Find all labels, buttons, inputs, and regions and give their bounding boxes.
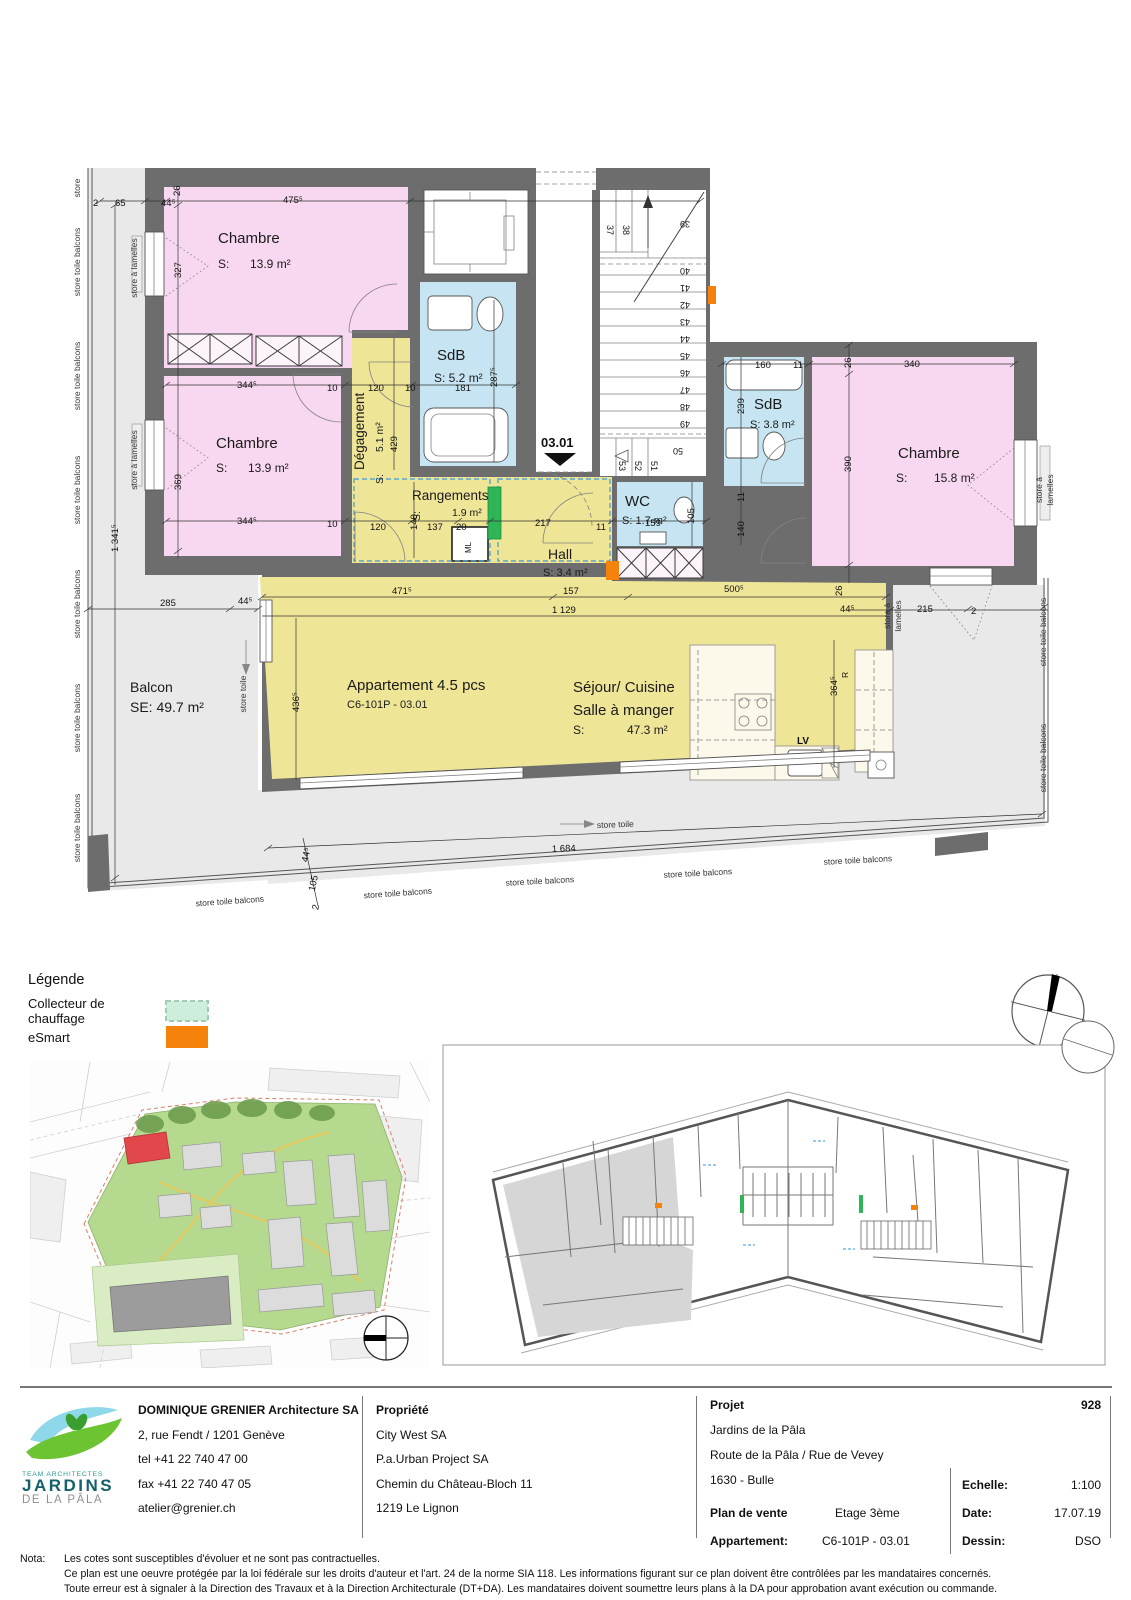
site-plan	[30, 1062, 430, 1368]
svg-text:39: 39	[680, 219, 690, 229]
legend-swatch-esmart	[164, 1025, 210, 1049]
svg-text:store toile balcons: store toile balcons	[72, 342, 82, 411]
svg-text:1 684: 1 684	[552, 843, 576, 855]
svg-text:50: 50	[673, 446, 683, 456]
esmart-box-2	[708, 286, 716, 304]
svg-text:2: 2	[93, 198, 98, 209]
svg-text:52: 52	[633, 461, 643, 471]
title-block: TEAM ARCHITECTES JARDINS DE LA PÂLA DOMI…	[20, 1386, 1112, 1548]
svg-text:53: 53	[617, 461, 627, 471]
svg-text:500⁵: 500⁵	[724, 584, 744, 595]
date-value: 17.07.19	[1054, 1506, 1101, 1520]
svg-text:S:: S:	[374, 474, 386, 484]
svg-text:store toile balcons: store toile balcons	[663, 866, 732, 880]
svg-text:S:: S:	[216, 461, 227, 475]
svg-text:10: 10	[405, 383, 416, 394]
svg-text:65: 65	[115, 198, 126, 209]
svg-text:46: 46	[680, 368, 690, 378]
svg-text:store à: store à	[1034, 477, 1044, 503]
svg-text:344⁵: 344⁵	[237, 516, 257, 527]
svg-text:390: 390	[843, 456, 854, 472]
room-balcon-name: Balcon	[130, 679, 173, 695]
svg-text:137: 137	[427, 522, 443, 533]
svg-text:S:: S:	[896, 471, 907, 485]
svg-text:436⁵: 436⁵	[291, 692, 302, 712]
svg-text:364⁵: 364⁵	[829, 676, 840, 696]
titleblock-separator-2	[696, 1396, 697, 1538]
floor-value: Etage 3ème	[835, 1506, 900, 1520]
elevator	[424, 190, 528, 274]
svg-text:44: 44	[680, 334, 690, 344]
svg-text:41: 41	[680, 283, 690, 293]
svg-text:181: 181	[455, 383, 471, 394]
svg-text:48: 48	[680, 402, 690, 412]
titleblock-separator-3	[950, 1468, 951, 1554]
room-sejour-name: Séjour/ Cuisine	[573, 679, 675, 696]
notes: Nota: Les cotes sont susceptibles d'évol…	[20, 1552, 1120, 1597]
svg-text:105: 105	[686, 508, 697, 524]
svg-text:120: 120	[368, 383, 384, 394]
svg-text:215: 215	[917, 604, 933, 615]
svg-text:10: 10	[327, 383, 338, 394]
site-building-highlight	[124, 1132, 170, 1164]
svg-text:store toile balcons: store toile balcons	[72, 684, 82, 753]
svg-text:S: 3.8 m²: S: 3.8 m²	[750, 419, 795, 431]
apartment-code: C6-101P - 03.01	[347, 699, 428, 711]
svg-text:store: store	[72, 178, 82, 197]
svg-text:344⁵: 344⁵	[237, 380, 257, 391]
room-degagement-name: Dégagement	[352, 392, 367, 470]
legend-title: Légende	[28, 972, 210, 988]
svg-text:1 129: 1 129	[552, 605, 576, 616]
scale-value: 1:100	[1071, 1478, 1101, 1492]
room-wc-name: WC	[625, 493, 650, 510]
collecteur-strip	[488, 487, 501, 539]
svg-text:43: 43	[680, 317, 690, 327]
svg-text:store toile balcons: store toile balcons	[72, 456, 82, 525]
room-sdb2-name: SdB	[754, 396, 782, 413]
apartment-title: Appartement 4.5 pcs	[347, 677, 485, 694]
svg-text:2: 2	[971, 606, 976, 617]
svg-text:13.9 m²: 13.9 m²	[248, 461, 289, 475]
svg-text:327: 327	[173, 262, 184, 278]
svg-text:S:: S:	[218, 257, 229, 271]
svg-text:store toile balcons: store toile balcons	[505, 874, 574, 888]
architect-name: DOMINIQUE GRENIER Architecture SA	[138, 1398, 358, 1423]
svg-text:S: 3.4 m²: S: 3.4 m²	[543, 567, 588, 579]
owner-info: Propriété City West SA P.a.Urban Project…	[376, 1398, 676, 1521]
svg-text:26: 26	[172, 185, 183, 196]
svg-text:369: 369	[173, 474, 184, 490]
svg-text:47.3 m²: 47.3 m²	[627, 723, 668, 737]
svg-text:51: 51	[649, 461, 659, 471]
svg-text:store à lamelles: store à lamelles	[129, 238, 139, 298]
legend-swatch-collecteur	[164, 999, 210, 1023]
svg-text:239: 239	[736, 398, 747, 414]
svg-text:Salle à manger: Salle à manger	[573, 702, 674, 719]
svg-text:45: 45	[680, 351, 690, 361]
fridge-label: R	[840, 672, 850, 678]
svg-text:44⁵: 44⁵	[840, 604, 855, 615]
svg-text:429: 429	[389, 436, 400, 452]
logo-graphic	[22, 1400, 126, 1466]
svg-text:11: 11	[793, 360, 803, 371]
svg-text:store à: store à	[882, 603, 892, 629]
svg-text:157: 157	[563, 586, 579, 597]
svg-text:store toile balcons: store toile balcons	[1038, 724, 1048, 793]
svg-text:1.9 m²: 1.9 m²	[452, 507, 482, 519]
svg-text:140: 140	[409, 514, 420, 530]
svg-text:lamelles: lamelles	[893, 600, 903, 631]
svg-text:26: 26	[834, 585, 845, 596]
room-chambre2-name: Chambre	[216, 435, 278, 452]
legend-item-collecteur: Collecteur de chauffage	[28, 998, 210, 1024]
svg-text:26: 26	[843, 357, 854, 368]
svg-text:38: 38	[621, 225, 631, 235]
svg-text:120: 120	[370, 522, 386, 533]
project-number: 928	[1081, 1398, 1101, 1412]
svg-text:44⁵: 44⁵	[161, 198, 176, 209]
svg-text:store toile balcons: store toile balcons	[72, 570, 82, 639]
svg-text:20: 20	[456, 522, 467, 533]
room-chambre3-name: Chambre	[898, 445, 960, 462]
svg-text:47: 47	[680, 385, 690, 395]
room-rangements-name: Rangements	[412, 488, 489, 503]
dishwasher-label: LV	[797, 736, 809, 747]
svg-text:340: 340	[904, 359, 920, 370]
svg-text:11: 11	[596, 522, 606, 533]
svg-text:140: 140	[736, 521, 747, 537]
svg-text:160: 160	[755, 360, 771, 371]
washer-label: ML	[464, 541, 473, 553]
svg-text:471⁵: 471⁵	[392, 586, 412, 597]
plan-de-vente-sheet: Chambre S: 13.9 m² Chambre S: 13.9 m² Sd…	[0, 0, 1131, 1600]
svg-text:SE: 49.7 m²: SE: 49.7 m²	[130, 699, 204, 715]
nota-label: Nota:	[20, 1552, 64, 1567]
svg-text:285: 285	[160, 598, 176, 609]
esmart-box	[606, 561, 619, 580]
svg-text:1 341⁵: 1 341⁵	[110, 524, 121, 552]
svg-text:40: 40	[680, 266, 690, 276]
svg-text:42: 42	[680, 300, 690, 310]
svg-text:15.8 m²: 15.8 m²	[934, 471, 975, 485]
titleblock-separator-1	[362, 1396, 363, 1538]
room-hall-name: Hall	[548, 546, 572, 562]
svg-text:105: 105	[307, 874, 321, 892]
project-info: Projet 928 Jardins de la Pâla Route de l…	[710, 1398, 1115, 1540]
svg-text:store toile balcons: store toile balcons	[195, 894, 264, 909]
svg-text:475⁵: 475⁵	[283, 195, 303, 206]
svg-text:store toile balcons: store toile balcons	[823, 853, 892, 867]
svg-text:store toile balcons: store toile balcons	[1038, 598, 1048, 667]
svg-text:store toile: store toile	[597, 819, 634, 830]
svg-text:49: 49	[680, 419, 690, 429]
svg-text:store toile balcons: store toile balcons	[72, 794, 82, 863]
architect-logo: TEAM ARCHITECTES JARDINS DE LA PÂLA	[22, 1400, 134, 1506]
svg-text:13.9 m²: 13.9 m²	[250, 257, 291, 271]
svg-text:11: 11	[736, 492, 747, 502]
svg-text:store à lamelles: store à lamelles	[129, 430, 139, 490]
svg-text:lamelles: lamelles	[1045, 474, 1055, 505]
room-chambre1-name: Chambre	[218, 230, 280, 247]
svg-text:store toile balcons: store toile balcons	[363, 886, 432, 901]
dessin-value: DSO	[1075, 1534, 1101, 1548]
legend-item-esmart: eSmart	[28, 1024, 210, 1050]
architect-email: atelier@grenier.ch	[138, 1496, 358, 1521]
svg-text:2: 2	[310, 903, 322, 910]
svg-text:44⁵: 44⁵	[238, 596, 253, 607]
legend: Légende Collecteur de chauffage eSmart	[28, 972, 210, 1050]
key-plan-compass	[1062, 1021, 1114, 1073]
site-compass	[364, 1316, 408, 1360]
svg-text:37: 37	[605, 225, 615, 235]
svg-text:217: 217	[535, 518, 551, 529]
svg-text:159: 159	[645, 518, 661, 529]
architect-info: DOMINIQUE GRENIER Architecture SA 2, rue…	[138, 1398, 358, 1521]
svg-text:10: 10	[327, 519, 338, 530]
svg-text:store toile balcons: store toile balcons	[72, 228, 82, 297]
entry-label: 03.01	[541, 435, 574, 450]
svg-text:S:: S:	[573, 723, 584, 737]
room-sdb1-name: SdB	[437, 347, 465, 364]
svg-text:store toile: store toile	[238, 675, 248, 712]
building-key-plan	[443, 1045, 1105, 1365]
apartment-value: C6-101P - 03.01	[822, 1534, 910, 1548]
svg-text:5.1 m²: 5.1 m²	[374, 422, 386, 452]
floor-plan: Chambre S: 13.9 m² Chambre S: 13.9 m² Sd…	[0, 0, 1131, 960]
svg-text:287⁵: 287⁵	[489, 367, 500, 387]
